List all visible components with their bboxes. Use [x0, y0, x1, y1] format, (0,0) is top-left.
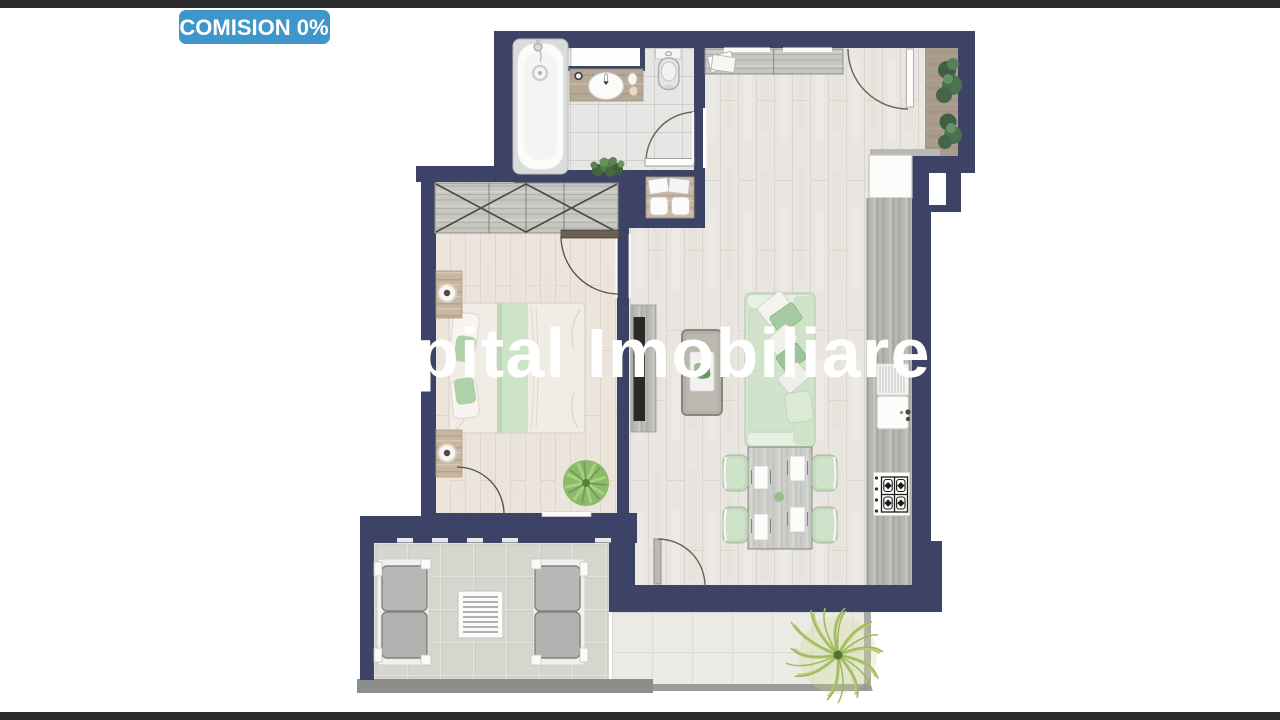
svg-text:pital Imobiliare: pital Imobiliare [416, 314, 931, 392]
svg-text:COMISION 0%: COMISION 0% [179, 15, 328, 40]
